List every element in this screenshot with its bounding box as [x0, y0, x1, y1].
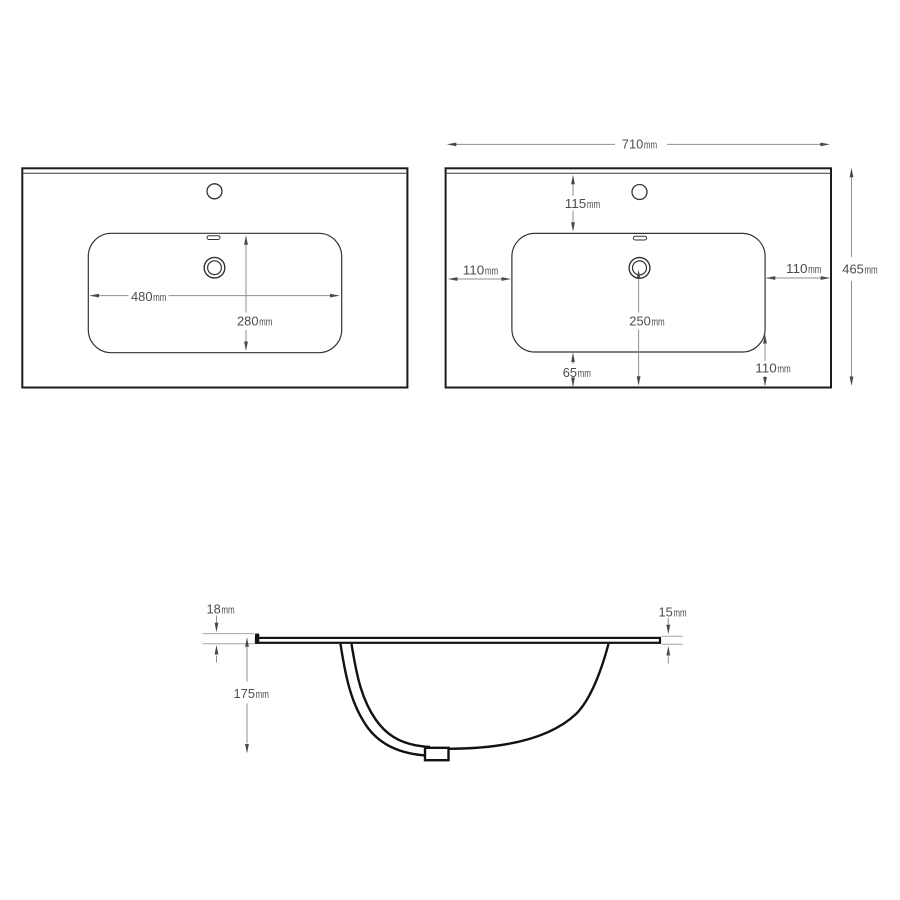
svg-text:115: 115 [565, 196, 587, 211]
svg-text:710: 710 [622, 137, 644, 152]
svg-text:110: 110 [463, 263, 485, 278]
svg-text:mm: mm [673, 608, 686, 620]
svg-text:mm: mm [808, 264, 821, 276]
svg-text:15: 15 [659, 605, 673, 620]
svg-text:mm: mm [153, 292, 166, 304]
svg-text:mm: mm [256, 689, 269, 701]
svg-text:65: 65 [563, 365, 577, 380]
svg-text:mm: mm [864, 264, 877, 276]
svg-text:mm: mm [259, 316, 272, 328]
svg-text:mm: mm [644, 140, 657, 152]
svg-text:mm: mm [578, 368, 591, 380]
svg-text:110: 110 [755, 361, 777, 376]
svg-text:mm: mm [777, 364, 790, 376]
svg-text:mm: mm [485, 266, 498, 278]
svg-text:mm: mm [221, 604, 234, 616]
svg-text:465: 465 [842, 261, 864, 276]
svg-text:250: 250 [629, 314, 651, 329]
svg-text:175: 175 [234, 686, 256, 701]
svg-text:mm: mm [651, 317, 664, 329]
svg-text:110: 110 [786, 261, 808, 276]
svg-text:18: 18 [207, 601, 221, 616]
svg-text:480: 480 [131, 289, 153, 304]
svg-text:mm: mm [587, 199, 600, 211]
svg-text:280: 280 [237, 313, 259, 328]
